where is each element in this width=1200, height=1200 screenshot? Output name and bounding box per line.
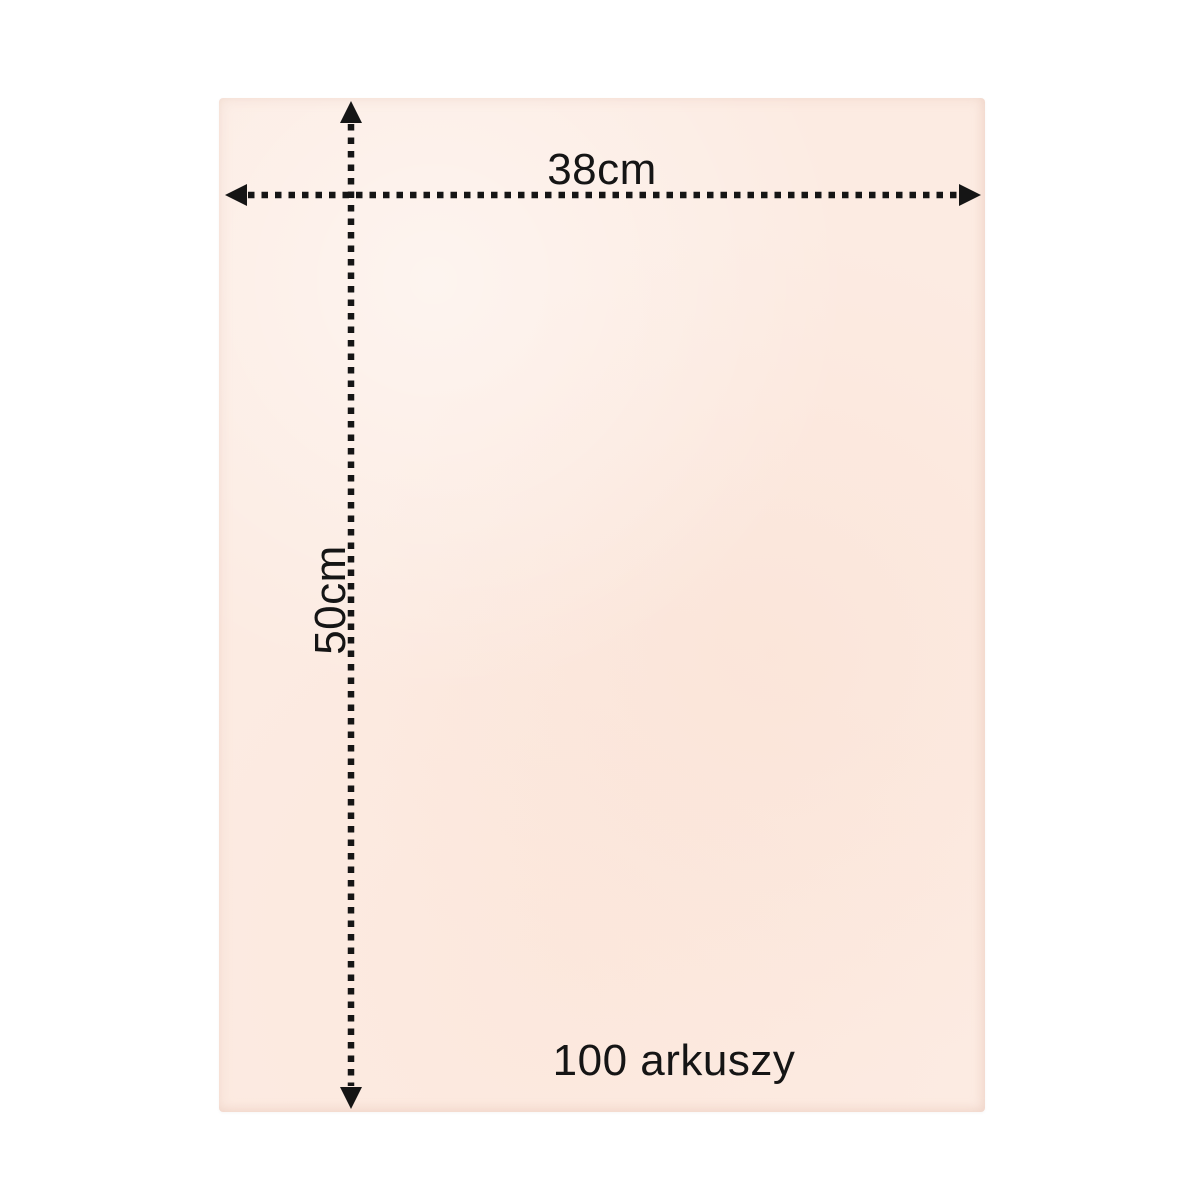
arrow-right-icon [959,184,981,206]
width-label: 38cm [547,145,657,195]
arrow-down-icon [340,1087,362,1109]
arrow-up-icon [340,101,362,123]
product-dimension-image: 38cm 50cm 100 arkuszy [0,0,1200,1200]
arrow-left-icon [225,184,247,206]
height-label: 50cm [306,545,356,655]
sheet-count-label: 100 arkuszy [553,1036,796,1086]
